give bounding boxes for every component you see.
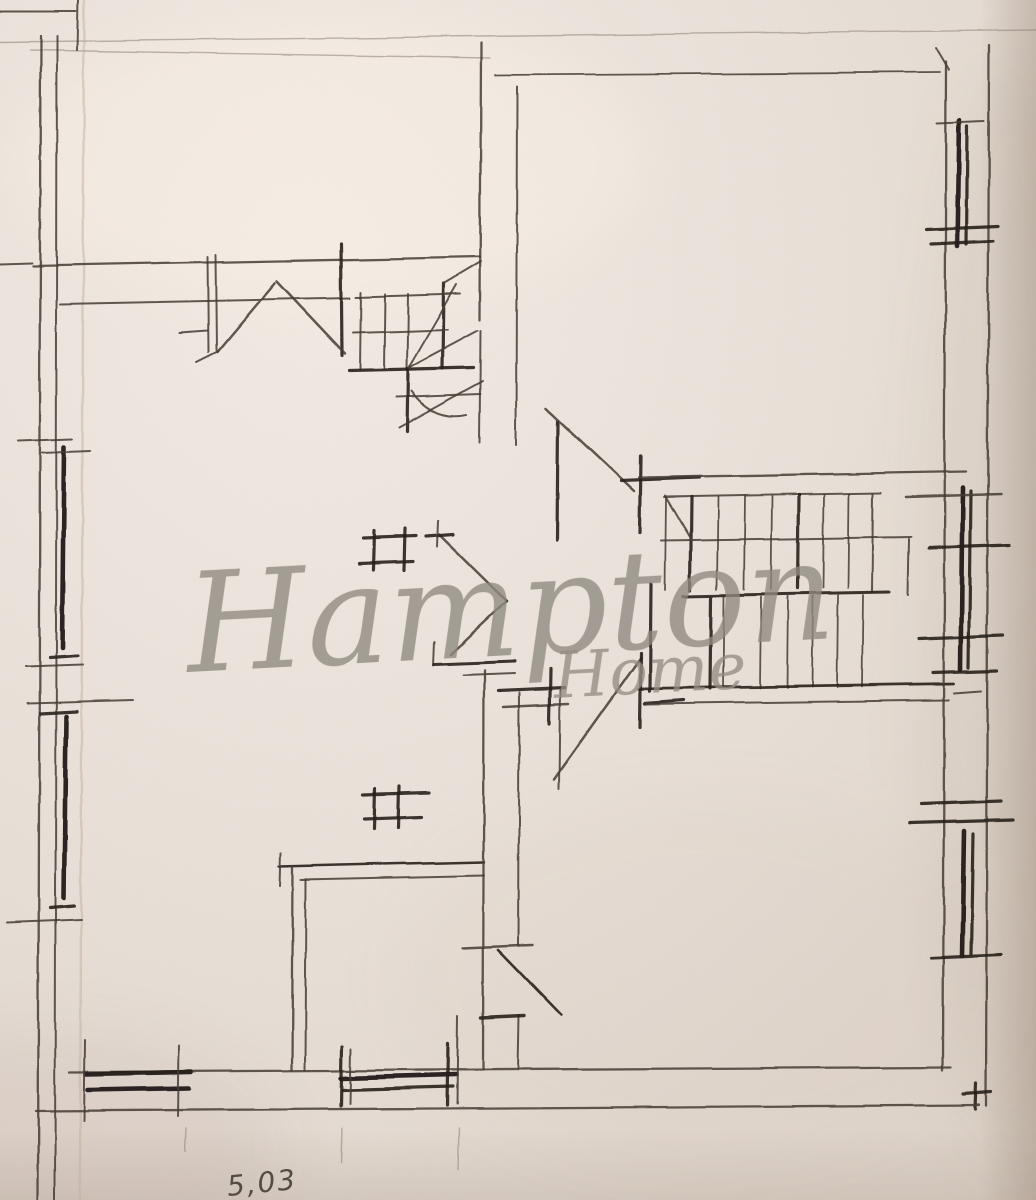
floor-plan-drawing: Hampton Home 5,03 (0, 0, 1036, 1200)
paper-grain-texture (0, 0, 1036, 1200)
paper-sheet: Hampton Home 5,03 (0, 0, 1036, 1200)
